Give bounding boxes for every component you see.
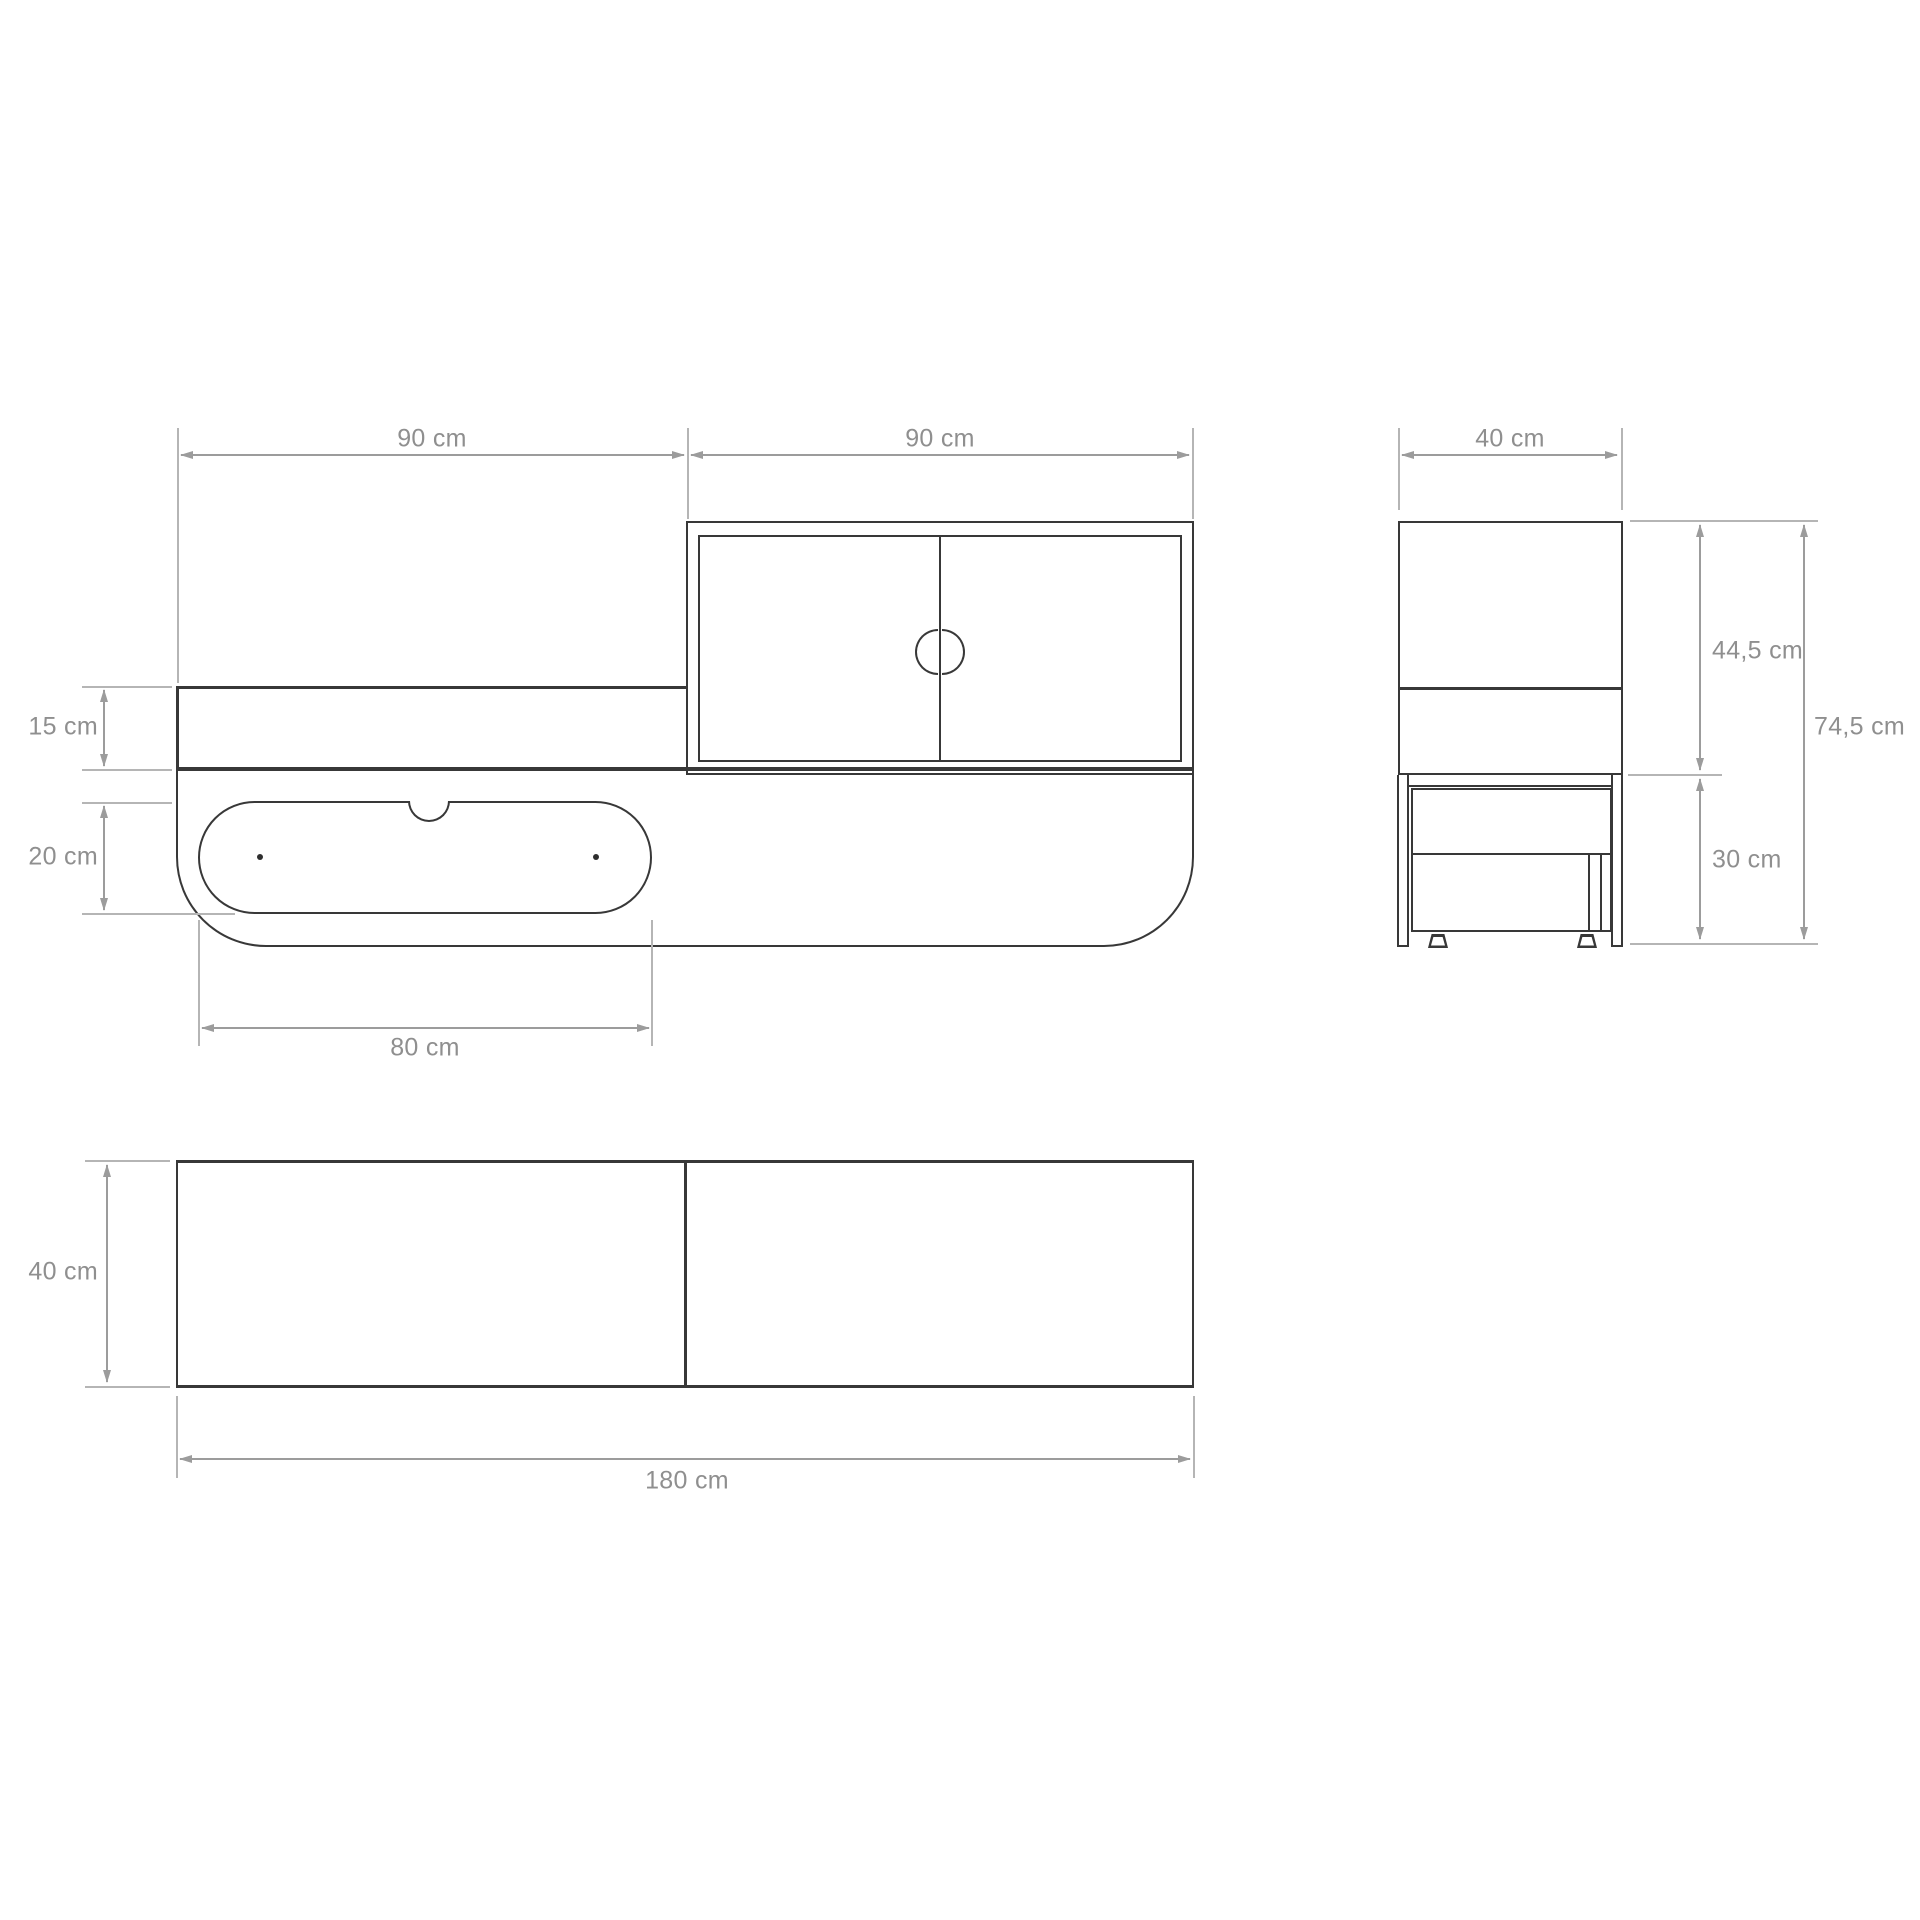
- top-divider-line: [684, 1160, 687, 1388]
- front-span-right-label: 90 cm: [905, 425, 975, 454]
- front-shelf-tick-bottom: [82, 769, 172, 771]
- front-drawer-tick-bottom: [82, 913, 235, 915]
- side-underpanel-line: [1409, 785, 1611, 787]
- side-leg-right: [1611, 775, 1623, 947]
- front-dimension-arrow-drawer-width: [202, 1027, 649, 1029]
- side-extension-line-right: [1621, 428, 1623, 510]
- front-shelf-tick-top: [82, 686, 172, 688]
- top-width-label: 180 cm: [645, 1467, 729, 1496]
- front-shelf-height-label: 15 cm: [28, 713, 98, 742]
- front-shelf-top-line: [176, 686, 686, 689]
- side-dimension-arrow-total-height: [1803, 525, 1805, 939]
- front-shelf-left-line: [176, 686, 179, 770]
- front-drawer-dot-left: [257, 854, 263, 860]
- side-extension-line-left: [1398, 428, 1400, 510]
- front-extension-line-middle: [687, 428, 689, 519]
- side-foot-left-inner: [1431, 937, 1445, 946]
- side-shelf-divider-line: [1398, 687, 1623, 690]
- top-depth-tick-top: [85, 1160, 170, 1162]
- side-leg-left: [1397, 775, 1409, 947]
- side-foot-right: [1577, 934, 1597, 948]
- side-foot-right-inner: [1580, 937, 1594, 946]
- side-tick-top: [1630, 520, 1818, 522]
- top-width-extension-left: [176, 1396, 178, 1478]
- side-depth-label: 40 cm: [1475, 425, 1545, 454]
- side-tick-bottom: [1630, 943, 1818, 945]
- side-foot-left: [1428, 934, 1448, 948]
- top-dimension-arrow-width: [180, 1458, 1190, 1460]
- side-tick-middle: [1628, 774, 1722, 776]
- top-depth-label: 40 cm: [28, 1258, 98, 1287]
- front-dimension-arrow-span-left: [181, 454, 684, 456]
- side-dimension-arrow-depth: [1402, 454, 1617, 456]
- technical-drawing-canvas: 90 cm 90 cm 15 cm 20 cm 80 cm: [0, 0, 1920, 1920]
- front-dimension-arrow-shelf-height: [103, 690, 105, 766]
- front-drawer-extension-left: [198, 920, 200, 1046]
- top-depth-tick-bottom: [85, 1386, 170, 1388]
- side-total-height-label: 74,5 cm: [1814, 713, 1905, 742]
- front-drawer-tick-top: [82, 802, 172, 804]
- front-drawer-extension-right: [651, 920, 653, 1046]
- side-upper-height-label: 44,5 cm: [1712, 637, 1803, 666]
- front-door-divider-line: [939, 535, 941, 762]
- side-body-outline: [1398, 521, 1623, 775]
- side-dimension-arrow-upper-height: [1699, 525, 1701, 770]
- top-dimension-arrow-depth: [106, 1165, 108, 1382]
- front-drawer-dot-right: [593, 854, 599, 860]
- front-dimension-arrow-drawer-height: [103, 806, 105, 910]
- front-dimension-arrow-span-right: [691, 454, 1189, 456]
- front-span-left-label: 90 cm: [397, 425, 467, 454]
- side-rail-line-2: [1600, 855, 1602, 932]
- front-drawer-height-label: 20 cm: [28, 843, 98, 872]
- front-extension-line-right: [1192, 428, 1194, 519]
- side-drawer-box-upper: [1411, 788, 1612, 855]
- side-drawer-box-lower: [1411, 855, 1612, 932]
- top-width-extension-right: [1193, 1396, 1195, 1478]
- front-extension-line-left: [177, 428, 179, 683]
- side-rail-line-1: [1588, 855, 1590, 932]
- side-lower-height-label: 30 cm: [1712, 846, 1782, 875]
- front-drawer-width-label: 80 cm: [390, 1034, 460, 1063]
- side-dimension-arrow-lower-height: [1699, 779, 1701, 939]
